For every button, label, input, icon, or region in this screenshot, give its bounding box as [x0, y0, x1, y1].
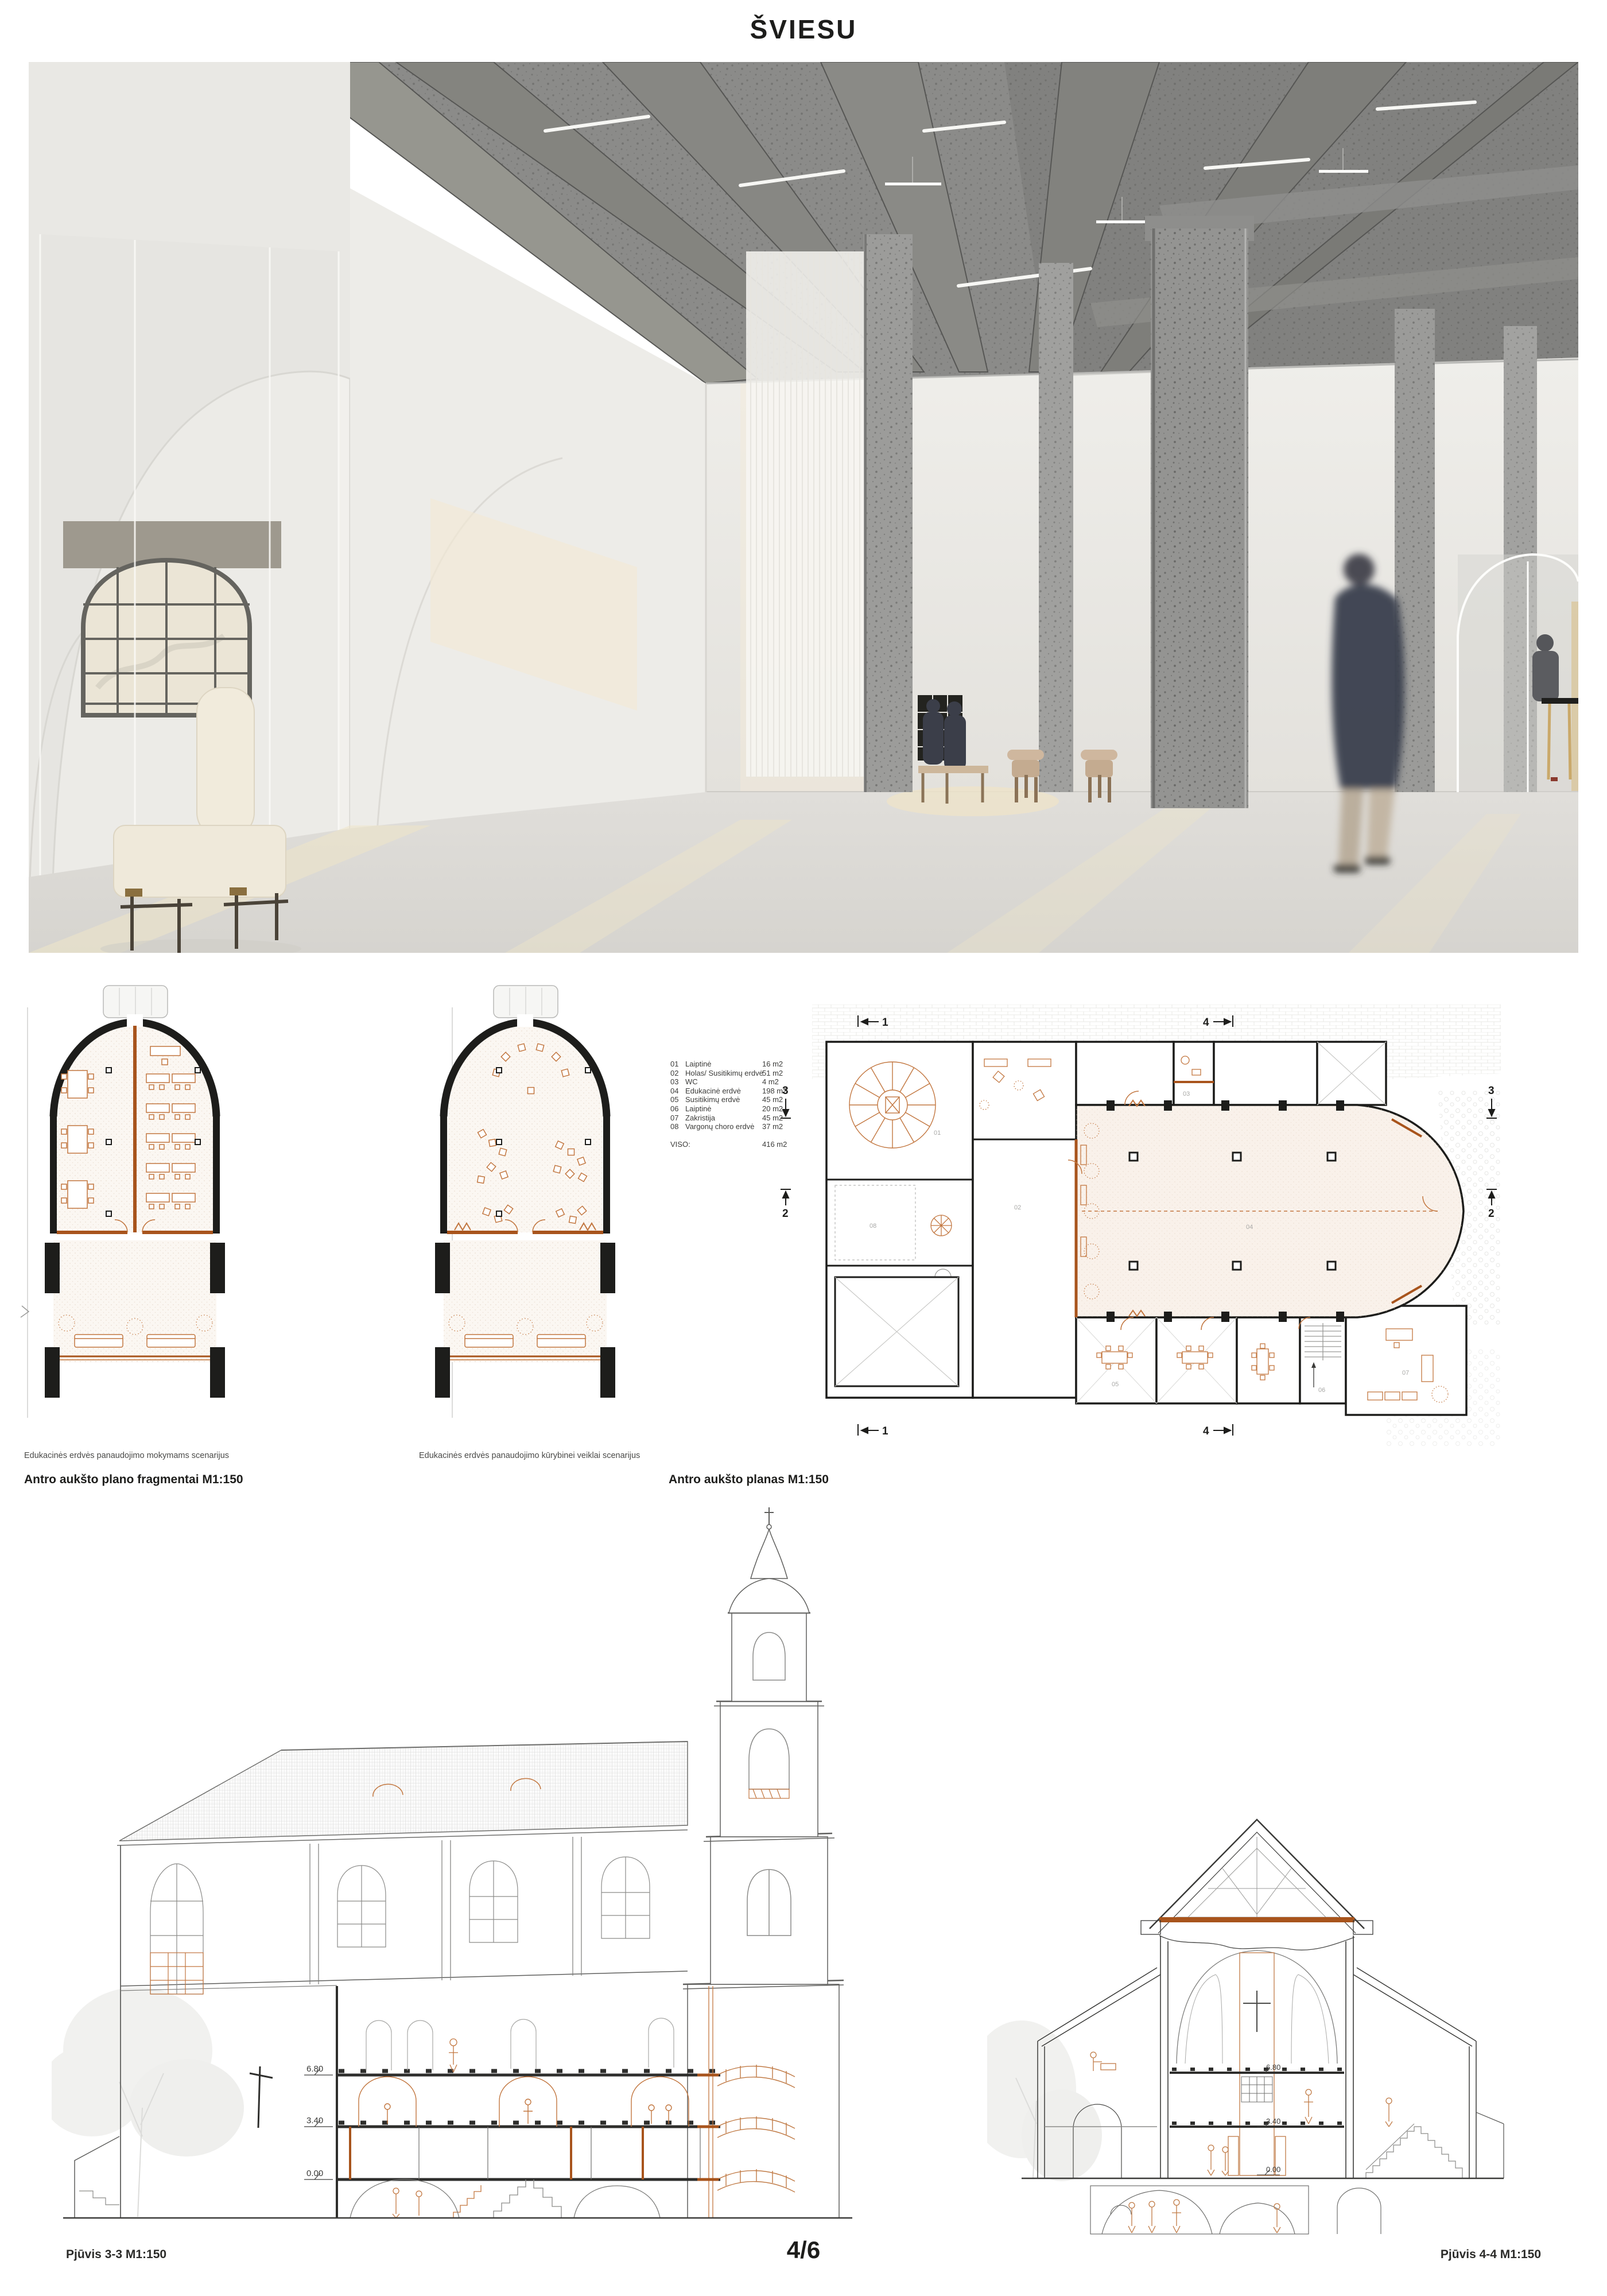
- fragment2-caption: Edukacinės erdvės panaudojimo kūrybinei …: [419, 1451, 640, 1460]
- room-name: Vargonų choro erdvė: [685, 1122, 754, 1131]
- wall-anchor: [250, 2066, 273, 2128]
- page-title: ŠVIESU: [0, 14, 1607, 45]
- level-markers: 6.80 3.40 0.00: [304, 2064, 333, 2179]
- room-label: 01: [934, 1130, 941, 1137]
- plan-fragment-creative: [402, 973, 649, 1429]
- room-name: WC: [685, 1077, 698, 1086]
- section-4-4-drawing: 6.80 3.40 0.00: [987, 1802, 1515, 2236]
- bell-tower: [683, 1507, 844, 2218]
- level-label: 0.00: [1266, 2165, 1280, 2174]
- crucifix-icon: [1243, 1991, 1271, 2032]
- plan-title: Antro aukšto planas M1:150: [669, 1473, 829, 1487]
- level-label: 3.40: [1266, 2117, 1280, 2126]
- marker-number: 4: [1203, 1425, 1209, 1437]
- nave-section: [1160, 1936, 1353, 2178]
- room-code: 05: [670, 1095, 685, 1104]
- tall-window: [150, 1864, 203, 1994]
- orange-figure: [449, 2039, 458, 2072]
- column: [864, 234, 913, 792]
- basement-vaults: [1090, 2186, 1381, 2234]
- aisle-stairs: [1366, 2124, 1462, 2178]
- tower-spire: [751, 1529, 787, 1578]
- room-code: 02: [670, 1069, 685, 1078]
- room-code: 01: [670, 1060, 685, 1069]
- basement-vaults: [350, 2179, 660, 2218]
- room-name: Holas/ Susitikimų erdvė: [685, 1069, 763, 1077]
- marker-number: 1: [882, 1017, 888, 1029]
- room-code: 06: [670, 1104, 685, 1114]
- section-4-4-label: Pjūvis 4-4 M1:150: [1441, 2248, 1541, 2262]
- right-aisle: [1353, 1968, 1504, 2178]
- plan-building: 01 02 03 04 05 06 07 08: [826, 1042, 1466, 1415]
- section-3-3-drawing: 6.80 3.40 0.00: [52, 1499, 855, 2231]
- room-label: 06: [1318, 1387, 1325, 1394]
- level-label: 6.80: [306, 2064, 323, 2074]
- plan-fragment-teaching: [17, 973, 253, 1429]
- church-roof: [117, 1742, 688, 1845]
- spiral-stair-small: [931, 1215, 952, 1236]
- room-label: 03: [1183, 1091, 1190, 1097]
- room-name: Zakristija: [685, 1114, 715, 1122]
- section-marker-3-left: 3: [781, 1085, 791, 1118]
- level-markers: 6.80 3.40 0.00: [1257, 2063, 1280, 2175]
- interior-render: [29, 62, 1578, 953]
- right-glass-arch: [1458, 554, 1578, 792]
- fragments-title: Antro aukšto plano fragmentai M1:150: [24, 1473, 243, 1487]
- marker-number: 2: [1488, 1208, 1495, 1220]
- room-name: Edukacinė erdvė: [685, 1087, 741, 1095]
- roof-truss: [1141, 1820, 1373, 1950]
- arched-rooms: [359, 2077, 689, 2127]
- orange-tie-beam: [1159, 1917, 1354, 1922]
- presentation-board: ŠVIESU: [0, 0, 1607, 2296]
- skylight-hall: [835, 1277, 958, 1386]
- room-name: Susitikimų erdvė: [685, 1095, 740, 1104]
- column: [1039, 263, 1073, 792]
- attic-figure: [1090, 2052, 1116, 2071]
- room-label: 07: [1402, 1370, 1409, 1376]
- background-tree: [52, 1987, 244, 2217]
- marker-number: 2: [782, 1208, 789, 1220]
- gold-curtain: [1571, 602, 1578, 791]
- room-code: 04: [670, 1087, 685, 1096]
- level-label: 6.80: [1266, 2063, 1280, 2072]
- level-label: 0.00: [306, 2169, 323, 2178]
- gallery-window: [1241, 2077, 1272, 2102]
- column-large: [1145, 216, 1254, 808]
- marker-number: 1: [882, 1425, 888, 1437]
- marker-number: 3: [1488, 1085, 1495, 1097]
- room-code: 03: [670, 1077, 685, 1087]
- room-label: 02: [1014, 1204, 1021, 1211]
- section-marker-2-left: 2: [781, 1189, 791, 1220]
- room-label: 05: [1112, 1381, 1119, 1388]
- total-label: VISO:: [670, 1140, 690, 1149]
- room-name: Laiptinė: [685, 1104, 712, 1113]
- room-area: 4 m2: [762, 1077, 779, 1087]
- room-name: Laiptinė: [685, 1060, 712, 1068]
- room-code: 08: [670, 1122, 685, 1131]
- room-code: 07: [670, 1114, 685, 1123]
- second-floor-plan: 1 4 1 4 3 3 2: [778, 1004, 1501, 1446]
- stairs: [494, 2179, 561, 2218]
- level-label: 3.40: [306, 2116, 323, 2126]
- section-marker-1-bottom: 1: [858, 1424, 888, 1437]
- page-number: 4/6: [0, 2236, 1607, 2264]
- basement-figures: [1128, 2200, 1280, 2233]
- fragment1-caption: Edukacinės erdvės panaudojimo mokymams s…: [24, 1451, 229, 1460]
- room-label: 04: [1246, 1224, 1253, 1231]
- section-marker-4-bottom: 4: [1203, 1424, 1233, 1437]
- marker-number: 4: [1203, 1017, 1209, 1029]
- marker-number: 3: [782, 1085, 789, 1097]
- room-label: 08: [870, 1223, 876, 1230]
- tower-cupola: [729, 1578, 809, 1613]
